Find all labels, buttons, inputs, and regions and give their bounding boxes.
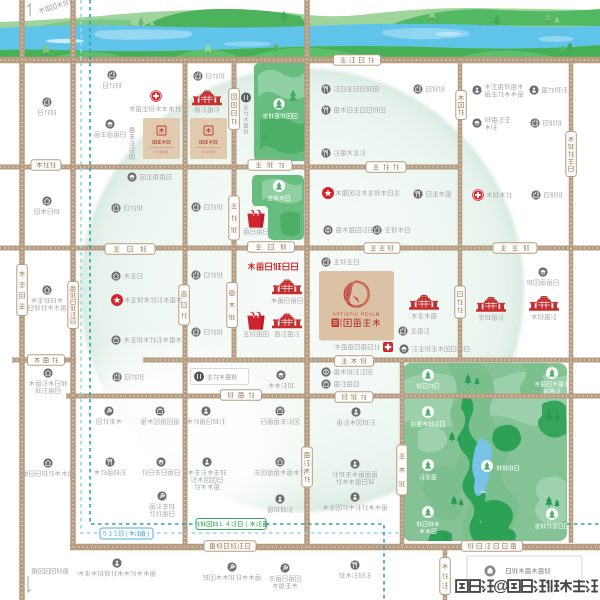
svg-text:L: L [220, 521, 224, 528]
svg-text:1: 1 [108, 531, 112, 538]
svg-text:5: 5 [103, 531, 107, 538]
svg-text:): ) [147, 531, 149, 538]
svg-text:1: 1 [114, 531, 118, 538]
svg-text:ARTISTIC REALM: ARTISTIC REALM [333, 312, 380, 317]
svg-text:@: @ [493, 577, 509, 595]
svg-text:4: 4 [226, 521, 230, 528]
